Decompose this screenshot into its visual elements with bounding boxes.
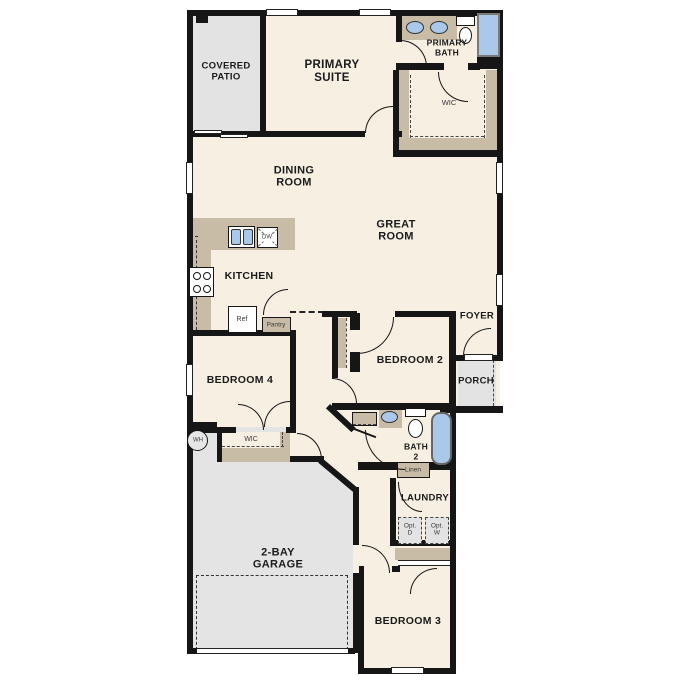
bedroom4-wic-wall-left	[217, 427, 222, 462]
sink-icon	[406, 21, 424, 34]
bedroom3-closet-door	[398, 560, 450, 566]
patio-corner-post	[196, 13, 208, 23]
garage-parking-dashed-outline	[196, 575, 348, 650]
bedroom2-wall-top	[395, 311, 455, 317]
bedroom3-wall-stub	[392, 566, 400, 572]
patio-slider-door	[220, 134, 248, 138]
window	[391, 667, 424, 674]
toilet-icon	[408, 419, 423, 438]
room-label-primary-bath: PRIMARY BATH	[427, 38, 468, 57]
window	[186, 364, 193, 396]
sink-icon	[430, 21, 448, 34]
floor-plan: COVERED PATIO PRIMARY SUITE PRIMARY BATH…	[0, 0, 687, 687]
room-label-dining-room: DINING ROOM	[274, 165, 314, 190]
bedroom2-closet-stub	[350, 352, 360, 372]
room-label-foyer: FOYER	[460, 312, 494, 323]
bedroom2-closet-dashed	[346, 318, 347, 368]
room-label-bedroom-3: BEDROOM 3	[375, 616, 441, 628]
bedroom4-wic-dashed-line	[222, 446, 284, 447]
room-label-bath-2: BATH 2	[404, 442, 428, 461]
room-label-bedroom-2: BEDROOM 2	[377, 355, 443, 367]
primary-suite-wall-bottom	[266, 131, 365, 137]
room-label-great-room: GREAT ROOM	[376, 219, 415, 244]
toilet-icon	[405, 408, 426, 417]
kitchen-sink-basin-icon	[243, 229, 253, 245]
window	[266, 9, 298, 16]
sink-icon	[381, 411, 398, 423]
bedroom2-closet-shelf	[338, 318, 346, 368]
fixture-label-opt-washer: Opt. W	[431, 523, 443, 538]
fixture-label-refrigerator: Ref	[237, 316, 248, 324]
bathtub-icon	[431, 412, 452, 465]
kitchen-sink-basin-icon	[231, 229, 241, 245]
room-label-covered-patio: COVERED PATIO	[202, 61, 251, 82]
room-label-garage: 2-BAY GARAGE	[253, 547, 303, 572]
fixture-label-pantry: Pantry	[267, 321, 286, 328]
window	[496, 274, 503, 306]
hall-archway-dashed	[290, 311, 324, 313]
bedroom2-wall-bottom	[332, 403, 456, 410]
room-label-laundry: LAUNDRY	[401, 494, 449, 505]
room-label-primary-suite: PRIMARY SUITE	[304, 59, 359, 85]
primary-wic-wall-left	[393, 70, 399, 157]
patio-slider-door	[194, 130, 222, 134]
room-label-bedroom4-wic: WIC	[244, 436, 258, 444]
primary-wic-dashed-line	[410, 75, 411, 138]
room-label-kitchen: KITCHEN	[225, 271, 274, 283]
garage-door-opening	[197, 648, 348, 654]
room-label-bedroom-4: BEDROOM 4	[207, 375, 273, 387]
coat-closet-dashed	[353, 424, 376, 425]
fixture-label-water-heater: WH	[193, 438, 203, 445]
foyer-wall-left	[449, 311, 456, 413]
fixture-label-opt-dryer: Opt. D	[404, 523, 416, 538]
primary-wic-dashed-line	[484, 75, 485, 138]
fixture-label-dishwasher: DW	[261, 235, 273, 242]
water-heater-nook-wall	[187, 422, 217, 427]
bedroom4-wic-dashed-line	[282, 432, 283, 447]
window	[496, 162, 503, 194]
bedroom4-wall-bottom-stub	[286, 427, 296, 433]
primary-wic-wall-bottom	[393, 150, 503, 157]
bedroom3-closet-shelf	[395, 548, 450, 560]
patio-wall-right	[260, 10, 266, 137]
window	[186, 162, 193, 194]
window	[359, 9, 391, 16]
room-label-primary-wic: WIC	[442, 99, 457, 107]
stove-icon	[189, 267, 214, 297]
primary-wic-shelf-bottom	[399, 138, 497, 150]
bedroom2-wall-left	[332, 313, 338, 378]
room-label-porch: PORCH	[458, 377, 494, 388]
bedroom4-wic-shelf-bottom	[217, 448, 290, 462]
laundry-wall-left	[390, 478, 396, 546]
primary-bath-wall-left	[396, 16, 402, 42]
garage-entry-opening	[353, 545, 359, 573]
shower-icon	[477, 13, 500, 57]
entry-wall	[492, 355, 503, 361]
shower-wall-block	[477, 55, 503, 69]
toilet-icon	[456, 16, 475, 26]
primary-wic-dashed-line	[410, 136, 484, 137]
bedroom4-wall-right	[290, 330, 296, 430]
fixture-label-linen: Linen	[405, 466, 421, 473]
